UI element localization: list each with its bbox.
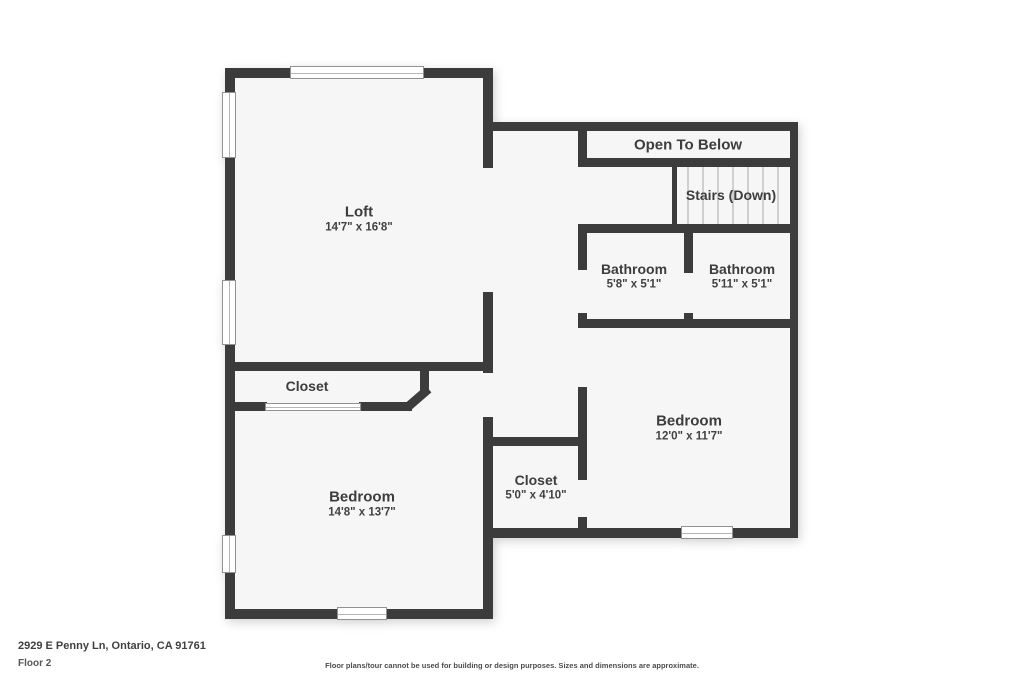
bathroom-left-label: Bathroom: [601, 262, 667, 276]
wall-bathroom-left-upper: [578, 233, 587, 270]
bedroom-left-label: Bedroom: [329, 490, 395, 505]
wall-center-lower: [483, 417, 493, 619]
closet-left-label: Closet: [286, 379, 329, 393]
bedroom-left-side-window: [222, 535, 236, 573]
loft-left-window-upper: [222, 92, 236, 158]
wall-middle-closet-top: [487, 437, 587, 446]
closet-middle-dimensions: 5'0" x 4'10": [505, 490, 566, 502]
bedroom-right-dimensions: 12'0" x 11'7": [656, 431, 723, 443]
wall-hall-top: [487, 122, 798, 131]
open-to-below-label: Open To Below: [634, 138, 742, 153]
wall-bedroom-right-left-upper: [578, 387, 587, 480]
stair-tread: [777, 166, 779, 224]
stairs-label: Stairs (Down): [686, 188, 776, 202]
closet-sliding-door: [265, 403, 361, 411]
wall-bathroom-left-lower: [578, 313, 587, 327]
left-wing-floor: [225, 68, 492, 619]
bathroom-right-label: Bathroom: [709, 262, 775, 276]
floor-plan-screenshot: Loft 14'7" x 16'8" Open To Below Stairs …: [0, 0, 1024, 683]
bedroom-right-bottom-window: [681, 526, 733, 539]
bathroom-right-dimensions: 5'11" x 5'1": [712, 279, 773, 291]
loft-left-window-lower: [222, 280, 236, 345]
wall-open-to-below-bottom: [578, 158, 798, 167]
loft-top-window: [290, 66, 424, 79]
wall-center-upper: [483, 68, 493, 168]
loft-label: Loft: [345, 205, 373, 220]
wall-bathrooms-top: [578, 224, 798, 233]
bedroom-left-dimensions: 14'8" x 13'7": [328, 507, 396, 519]
loft-dimensions: 14'7" x 16'8": [325, 222, 393, 234]
bedroom-right-label: Bedroom: [656, 414, 722, 429]
wall-bathroom-divider-lower: [684, 313, 693, 327]
closet-middle-label: Closet: [515, 473, 558, 487]
property-address: 2929 E Penny Ln, Ontario, CA 91761: [18, 640, 206, 652]
wall-center-mid: [483, 292, 493, 373]
wall-right-outer: [790, 122, 798, 538]
bathroom-left-dimensions: 5'8" x 5'1": [607, 279, 662, 291]
wall-loft-bottom: [225, 362, 492, 371]
wall-stairs-left: [672, 166, 677, 224]
wall-bedroom-right-left-lower: [578, 517, 587, 538]
floor-plan: Loft 14'7" x 16'8" Open To Below Stairs …: [0, 0, 1024, 683]
wall-right-wing-bottom: [487, 528, 798, 538]
wall-open-to-below-left: [578, 122, 587, 167]
wall-bathroom-divider-upper: [684, 233, 693, 273]
disclaimer-text: Floor plans/tour cannot be used for buil…: [0, 661, 1024, 670]
bedroom-left-bottom-window: [337, 607, 387, 620]
